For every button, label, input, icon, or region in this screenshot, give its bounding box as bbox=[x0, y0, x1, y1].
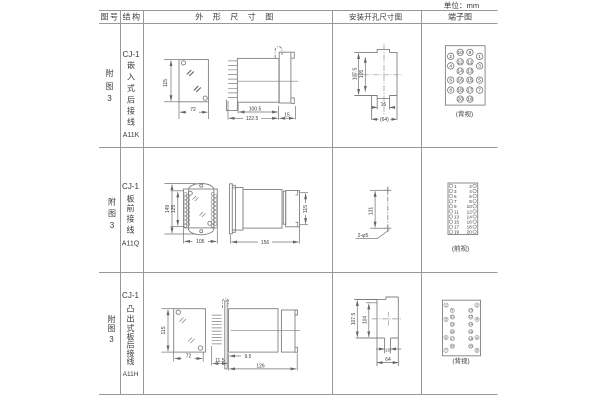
svg-text:CJ-1: CJ-1 bbox=[123, 50, 140, 59]
svg-text:14: 14 bbox=[469, 323, 473, 327]
svg-text:附: 附 bbox=[108, 314, 116, 324]
svg-text:13: 13 bbox=[451, 323, 455, 327]
svg-text:A11Q: A11Q bbox=[122, 241, 140, 248]
svg-text:端子图: 端子图 bbox=[448, 12, 472, 22]
svg-text:4: 4 bbox=[449, 64, 452, 70]
svg-text:156: 156 bbox=[261, 240, 270, 246]
svg-text:5: 5 bbox=[445, 336, 447, 340]
svg-text:19: 19 bbox=[467, 97, 473, 103]
svg-text:前: 前 bbox=[127, 203, 135, 213]
svg-text:1: 1 bbox=[445, 303, 447, 307]
svg-text:131: 131 bbox=[368, 207, 374, 216]
svg-text:9: 9 bbox=[469, 50, 472, 56]
svg-text:11: 11 bbox=[467, 59, 472, 65]
svg-text:3: 3 bbox=[110, 221, 115, 230]
svg-text:115: 115 bbox=[303, 205, 309, 213]
svg-text:19: 19 bbox=[451, 344, 455, 348]
svg-text:出: 出 bbox=[127, 314, 135, 324]
svg-text:2: 2 bbox=[476, 303, 478, 307]
svg-text:16: 16 bbox=[469, 330, 473, 334]
svg-text:11.5: 11.5 bbox=[215, 358, 225, 364]
svg-text:CJ-1: CJ-1 bbox=[122, 291, 139, 300]
svg-text:式: 式 bbox=[127, 83, 135, 93]
svg-text:单位：mm: 单位：mm bbox=[444, 0, 479, 10]
svg-text:20: 20 bbox=[467, 230, 473, 235]
svg-text:104: 104 bbox=[363, 316, 369, 325]
svg-text:图号: 图号 bbox=[101, 13, 120, 22]
svg-text:9: 9 bbox=[451, 309, 453, 313]
svg-text:16: 16 bbox=[458, 78, 464, 84]
svg-text:8: 8 bbox=[449, 88, 452, 94]
svg-text:126: 126 bbox=[256, 364, 265, 370]
svg-text:线: 线 bbox=[127, 117, 135, 127]
svg-text:10: 10 bbox=[458, 50, 464, 56]
svg-text:100.5: 100.5 bbox=[249, 106, 262, 112]
svg-text:(背视): (背视) bbox=[452, 356, 469, 365]
svg-text:125: 125 bbox=[171, 205, 177, 214]
svg-text:15: 15 bbox=[284, 113, 290, 119]
svg-text:(背视): (背视) bbox=[456, 109, 473, 118]
svg-text:122.5: 122.5 bbox=[246, 116, 259, 122]
svg-text:2-φ5: 2-φ5 bbox=[358, 233, 369, 239]
svg-text:后: 后 bbox=[127, 95, 135, 105]
svg-text:12: 12 bbox=[469, 315, 473, 319]
svg-text:72: 72 bbox=[190, 107, 196, 113]
svg-text:12: 12 bbox=[458, 59, 464, 65]
svg-text:A11K: A11K bbox=[123, 132, 140, 139]
svg-text:9.5: 9.5 bbox=[245, 354, 252, 360]
svg-text:结构: 结构 bbox=[123, 12, 142, 22]
svg-text:17: 17 bbox=[467, 88, 473, 94]
svg-text:115: 115 bbox=[163, 79, 169, 87]
svg-text:图: 图 bbox=[106, 82, 114, 91]
svg-text:7: 7 bbox=[478, 88, 481, 94]
svg-text:8: 8 bbox=[476, 349, 478, 353]
svg-text:10: 10 bbox=[469, 309, 473, 313]
svg-text:17: 17 bbox=[451, 337, 455, 341]
svg-text:15: 15 bbox=[451, 330, 455, 334]
svg-text:7: 7 bbox=[445, 349, 447, 353]
svg-text:19: 19 bbox=[454, 230, 460, 235]
svg-text:嵌: 嵌 bbox=[127, 61, 135, 70]
svg-text:接: 接 bbox=[127, 106, 135, 116]
svg-text:A11H: A11H bbox=[123, 371, 139, 378]
svg-text:15: 15 bbox=[467, 78, 473, 84]
svg-text:3: 3 bbox=[109, 335, 114, 344]
svg-text:凸: 凸 bbox=[127, 305, 135, 314]
svg-text:105: 105 bbox=[196, 239, 205, 245]
svg-text:(前视): (前视) bbox=[452, 244, 469, 253]
svg-text:接: 接 bbox=[127, 214, 135, 224]
svg-text:附: 附 bbox=[108, 197, 116, 207]
svg-text:6: 6 bbox=[476, 336, 478, 340]
svg-text:5: 5 bbox=[478, 78, 481, 84]
svg-text:1: 1 bbox=[478, 54, 481, 60]
svg-text:18: 18 bbox=[469, 337, 473, 341]
svg-text:3: 3 bbox=[478, 64, 481, 70]
svg-text:115: 115 bbox=[161, 326, 167, 334]
svg-text:图: 图 bbox=[108, 324, 116, 333]
svg-text:线: 线 bbox=[127, 225, 135, 235]
svg-text:入: 入 bbox=[127, 73, 135, 82]
svg-text:11: 11 bbox=[451, 315, 455, 319]
svg-text:16: 16 bbox=[385, 348, 390, 353]
svg-text:图: 图 bbox=[108, 209, 116, 218]
svg-text:107.5: 107.5 bbox=[352, 68, 358, 81]
svg-text:3: 3 bbox=[107, 94, 112, 103]
svg-text:64: 64 bbox=[385, 357, 391, 363]
svg-text:20: 20 bbox=[458, 97, 464, 103]
svg-text:72: 72 bbox=[186, 354, 192, 360]
svg-text:附: 附 bbox=[106, 68, 114, 78]
svg-text:安装开孔尺寸图: 安装开孔尺寸图 bbox=[349, 12, 402, 22]
svg-text:(64): (64) bbox=[380, 117, 389, 123]
svg-text:2: 2 bbox=[449, 54, 452, 60]
svg-text:16: 16 bbox=[381, 102, 387, 108]
svg-text:14: 14 bbox=[458, 69, 464, 75]
svg-text:20: 20 bbox=[469, 344, 473, 348]
svg-text:外形尺寸图: 外形尺寸图 bbox=[195, 12, 283, 22]
svg-text:后: 后 bbox=[127, 340, 135, 350]
svg-text:107.5: 107.5 bbox=[351, 313, 357, 326]
svg-text:板: 板 bbox=[127, 194, 135, 204]
svg-text:线: 线 bbox=[127, 356, 135, 366]
svg-text:13: 13 bbox=[467, 69, 473, 75]
svg-text:4: 4 bbox=[476, 318, 478, 322]
svg-text:6: 6 bbox=[449, 78, 452, 84]
svg-text:CJ-1: CJ-1 bbox=[122, 182, 139, 191]
svg-text:3: 3 bbox=[445, 318, 447, 322]
svg-text:105: 105 bbox=[359, 70, 365, 79]
svg-text:式: 式 bbox=[127, 323, 135, 333]
svg-text:18: 18 bbox=[458, 88, 464, 94]
